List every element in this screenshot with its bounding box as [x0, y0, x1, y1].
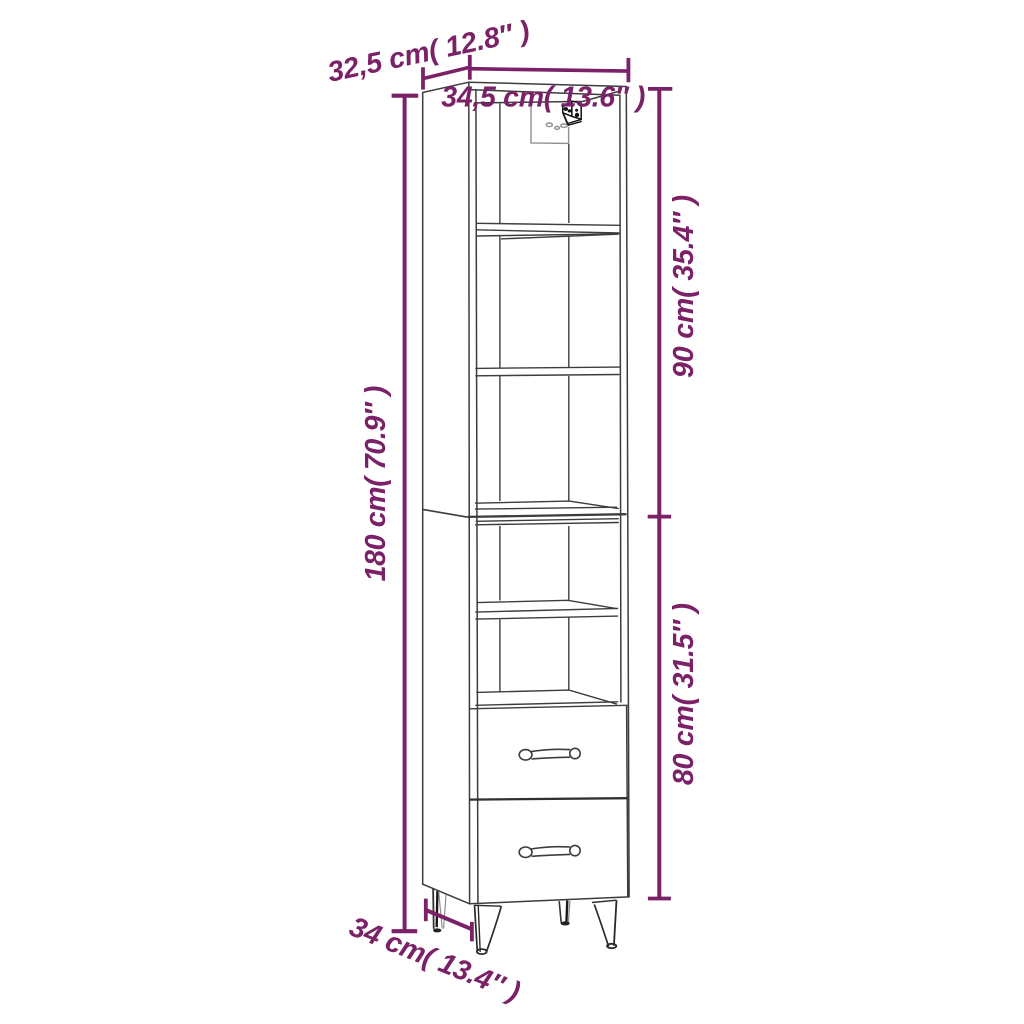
svg-text:34,5 cm( 13.6″ ): 34,5 cm( 13.6″ )	[441, 81, 645, 113]
svg-text:80 cm( 31.5″ ): 80 cm( 31.5″ )	[668, 603, 700, 785]
svg-text:180 cm( 70.9″ ): 180 cm( 70.9″ )	[360, 386, 392, 581]
svg-text:90 cm( 35.4″ ): 90 cm( 35.4″ )	[668, 195, 700, 378]
